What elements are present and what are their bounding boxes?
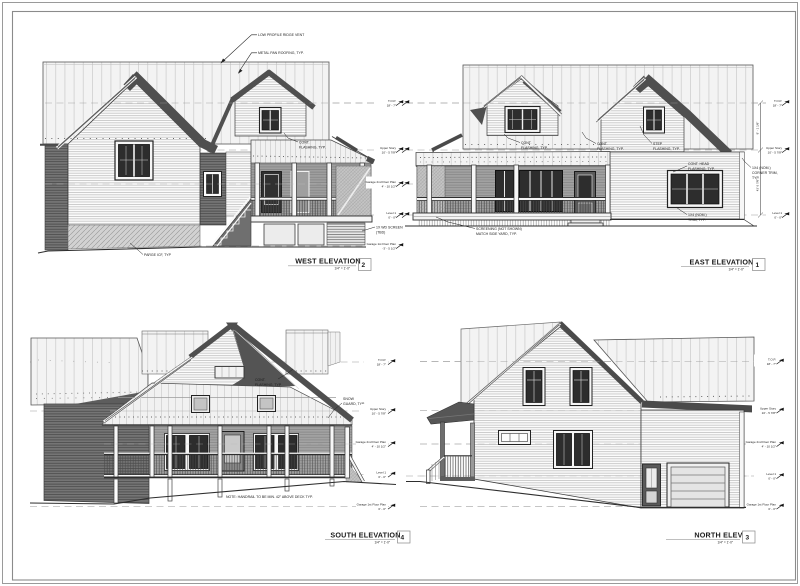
svg-text:18' - 7": 18' - 7" [767,362,776,366]
svg-text:43' 6 7/8": 43' 6 7/8" [756,179,760,191]
svg-text:Upper Story: Upper Story [380,146,397,150]
svg-text:Upper Story: Upper Story [370,407,387,411]
svg-text:0' - 0": 0' - 0" [768,507,776,511]
svg-text:FLASHING, TYP.: FLASHING, TYP. [597,147,624,151]
svg-text:Level 1: Level 1 [376,471,386,475]
svg-text:18' - 7": 18' - 7" [387,104,396,108]
svg-text:GUARD, TYP: GUARD, TYP [343,402,365,406]
svg-text:-3' - 5 1/2": -3' - 5 1/2" [382,247,396,251]
svg-text:FLASHING, TYP: FLASHING, TYP [255,383,282,387]
svg-text:NOTE: HANDRAIL TO BE MIN. 42": NOTE: HANDRAIL TO BE MIN. 42" ABOVE DECK… [226,495,313,499]
svg-text:FLASHING, TYP.: FLASHING, TYP. [299,146,326,150]
svg-text:4' - 10 1/2": 4' - 10 1/2" [382,185,396,189]
svg-text:CONT.: CONT. [255,378,266,382]
svg-text:T.O.P.: T.O.P. [378,358,386,362]
svg-text:4' - 10 1/2": 4' - 10 1/2" [762,445,776,449]
svg-text:1X4 (NOM.): 1X4 (NOM.) [688,213,707,217]
svg-text:Garage 2nd Floor Plan: Garage 2nd Floor Plan [746,440,777,444]
svg-text:1X4 (NOM.): 1X4 (NOM.) [752,166,771,170]
svg-text:2: 2 [362,262,366,269]
svg-text:10' - 5 7/8": 10' - 5 7/8" [372,412,386,416]
svg-text:LOW PROFILE RIDGE VENT: LOW PROFILE RIDGE VENT [258,33,305,37]
svg-text:10' - 5 7/8": 10' - 5 7/8" [768,151,782,155]
svg-text:WEST ELEVATION: WEST ELEVATION [295,257,361,266]
svg-text:T.O.P.: T.O.P. [388,99,396,103]
svg-text:Garage 2nd Floor Plan: Garage 2nd Floor Plan [356,440,387,444]
svg-text:8' - 1 1/8": 8' - 1 1/8" [756,122,760,135]
svg-text:FLASHING, TYP.: FLASHING, TYP. [688,167,715,171]
svg-text:4: 4 [401,535,405,542]
svg-text:Upper Story: Upper Story [760,407,777,411]
svg-text:0' - 0": 0' - 0" [388,216,396,220]
svg-text:CONT.: CONT. [299,141,310,145]
svg-text:(TBD): (TBD) [376,231,385,235]
svg-text:10' - 5 7/8": 10' - 5 7/8" [762,411,776,415]
svg-text:Level 1: Level 1 [766,472,776,476]
svg-text:1X WD SCREEN: 1X WD SCREEN [376,226,403,230]
svg-text:SCREENING (NOT SHOWN): SCREENING (NOT SHOWN) [476,227,522,231]
svg-text:1/4" = 1'-0": 1/4" = 1'-0" [717,541,733,545]
svg-text:SOUTH ELEVATION: SOUTH ELEVATION [330,531,400,540]
svg-text:Level 1: Level 1 [386,211,396,215]
svg-text:Upper Story: Upper Story [766,146,783,150]
svg-text:18' - 7": 18' - 7" [377,363,386,367]
svg-text:0' - 0": 0' - 0" [378,475,386,479]
svg-text:1: 1 [756,262,760,269]
svg-text:CORNER TRIM,: CORNER TRIM, [752,171,778,175]
svg-text:T.O.P.: T.O.P. [774,99,782,103]
svg-text:T.O.P.: T.O.P. [768,358,776,362]
svg-text:0' - 0": 0' - 0" [774,216,782,220]
svg-text:CONT. HEAD: CONT. HEAD [688,162,710,166]
svg-text:Garage 1st Floor Plan: Garage 1st Floor Plan [357,503,387,507]
svg-text:MATCH SIDE YARD, TYP.: MATCH SIDE YARD, TYP. [476,232,517,236]
svg-text:Garage 1st Floor Plan: Garage 1st Floor Plan [747,503,777,507]
svg-text:CONT.: CONT. [521,141,532,145]
svg-text:EAST ELEVATION: EAST ELEVATION [689,258,753,267]
svg-text:Garage 1st Floor Plan: Garage 1st Floor Plan [367,242,397,246]
svg-text:0' - 0": 0' - 0" [378,507,386,511]
svg-text:CONT.: CONT. [597,142,608,146]
svg-text:STEP: STEP [653,142,663,146]
svg-text:Garage 2nd Floor Plan: Garage 2nd Floor Plan [366,180,397,184]
svg-text:1/4" = 1'-0": 1/4" = 1'-0" [374,541,390,545]
svg-text:1/4" = 1'-0": 1/4" = 1'-0" [728,268,744,272]
svg-text:1/4" = 1'-0": 1/4" = 1'-0" [334,267,350,271]
svg-text:METAL PAN ROOFING, TYP.: METAL PAN ROOFING, TYP. [258,51,304,55]
svg-text:NORTH ELEV: NORTH ELEV [694,531,742,540]
svg-text:0' - 0": 0' - 0" [768,477,776,481]
svg-text:Level 1: Level 1 [772,211,782,215]
svg-text:TRIM, TYP.: TRIM, TYP. [688,218,706,222]
svg-text:FLASHING, TYP.: FLASHING, TYP. [521,146,548,150]
svg-text:PARGE ICF, TYP: PARGE ICF, TYP [144,253,172,257]
svg-text:FLASHING, TYP.: FLASHING, TYP. [653,147,680,151]
svg-text:18' - 7": 18' - 7" [773,104,782,108]
svg-text:4' - 10 1/2": 4' - 10 1/2" [372,445,386,449]
svg-text:SNOW: SNOW [343,397,355,401]
svg-text:10' - 5 7/8": 10' - 5 7/8" [382,151,396,155]
svg-text:3: 3 [746,535,750,542]
